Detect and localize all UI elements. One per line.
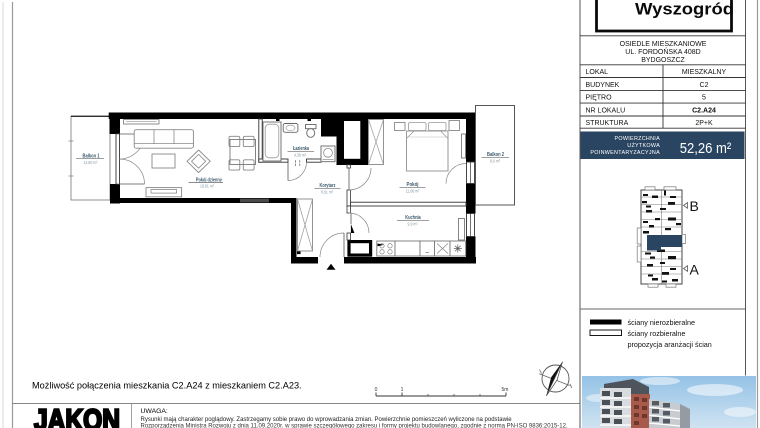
- svg-text:MIESZKALNY: MIESZKALNY: [682, 69, 727, 76]
- svg-text:8,6 m²: 8,6 m²: [490, 159, 500, 164]
- svg-text:5: 5: [702, 95, 706, 102]
- svg-text:C2.A24: C2.A24: [692, 107, 716, 114]
- svg-text:BUDYNEK: BUDYNEK: [586, 82, 620, 89]
- svg-text:ściany nierozbieralne: ściany nierozbieralne: [628, 318, 696, 327]
- svg-text:52,26 m²: 52,26 m²: [680, 140, 732, 157]
- svg-text:UŻYTKOWA: UŻYTKOWA: [627, 142, 660, 149]
- svg-text:1: 1: [401, 387, 404, 393]
- svg-text:A: A: [690, 262, 700, 278]
- svg-text:0: 0: [375, 387, 378, 393]
- svg-text:C2: C2: [700, 82, 709, 89]
- svg-text:Rysunki mają charakter poglądo: Rysunki mają charakter poglądowy. Zastrz…: [141, 417, 513, 423]
- svg-text:4,36 m²: 4,36 m²: [294, 153, 306, 158]
- svg-text:OSIEDLE MIESZKANIOWE: OSIEDLE MIESZKANIOWE: [620, 41, 707, 48]
- svg-text:UWAGA:: UWAGA:: [141, 408, 168, 415]
- svg-text:POWIERZCHNIA: POWIERZCHNIA: [614, 136, 660, 142]
- svg-text:Wyszogród: Wyszogród: [635, 0, 734, 18]
- svg-text:19,81 m²: 19,81 m²: [200, 184, 214, 189]
- svg-text:ściany rozbieralne: ściany rozbieralne: [628, 329, 686, 338]
- svg-text:B: B: [690, 198, 699, 214]
- svg-text:POINWENTARYZACYJNA: POINWENTARYZACYJNA: [590, 150, 660, 156]
- svg-text:Możliwość połączenia mieszkani: Możliwość połączenia mieszkania C2.A24 z…: [32, 381, 302, 391]
- svg-text:STRUKTURA: STRUKTURA: [586, 120, 629, 127]
- svg-text:UL. FORDOŃSKA 408D: UL. FORDOŃSKA 408D: [625, 47, 700, 56]
- svg-text:PIĘTRO: PIĘTRO: [586, 95, 613, 102]
- svg-text:14,80 m²: 14,80 m²: [84, 160, 98, 165]
- svg-text:8,91 m²: 8,91 m²: [321, 190, 333, 195]
- svg-text:propozycja aranżacji ścian: propozycja aranżacji ścian: [628, 340, 712, 349]
- svg-text:BYDGOSZCZ: BYDGOSZCZ: [641, 57, 685, 64]
- svg-text:2P+K: 2P+K: [695, 120, 713, 127]
- svg-text:9,9 m²: 9,9 m²: [408, 222, 418, 227]
- svg-text:Rozporządzenia Ministra Rozwoj: Rozporządzenia Ministra Rozwoju z dnia 1…: [141, 423, 568, 428]
- svg-text:11,06 m²: 11,06 m²: [406, 189, 420, 194]
- svg-text:JAKON: JAKON: [34, 404, 120, 428]
- svg-text:LOKAL: LOKAL: [586, 69, 609, 76]
- svg-text:NR LOKALU: NR LOKALU: [586, 107, 626, 114]
- svg-text:5m: 5m: [502, 387, 509, 393]
